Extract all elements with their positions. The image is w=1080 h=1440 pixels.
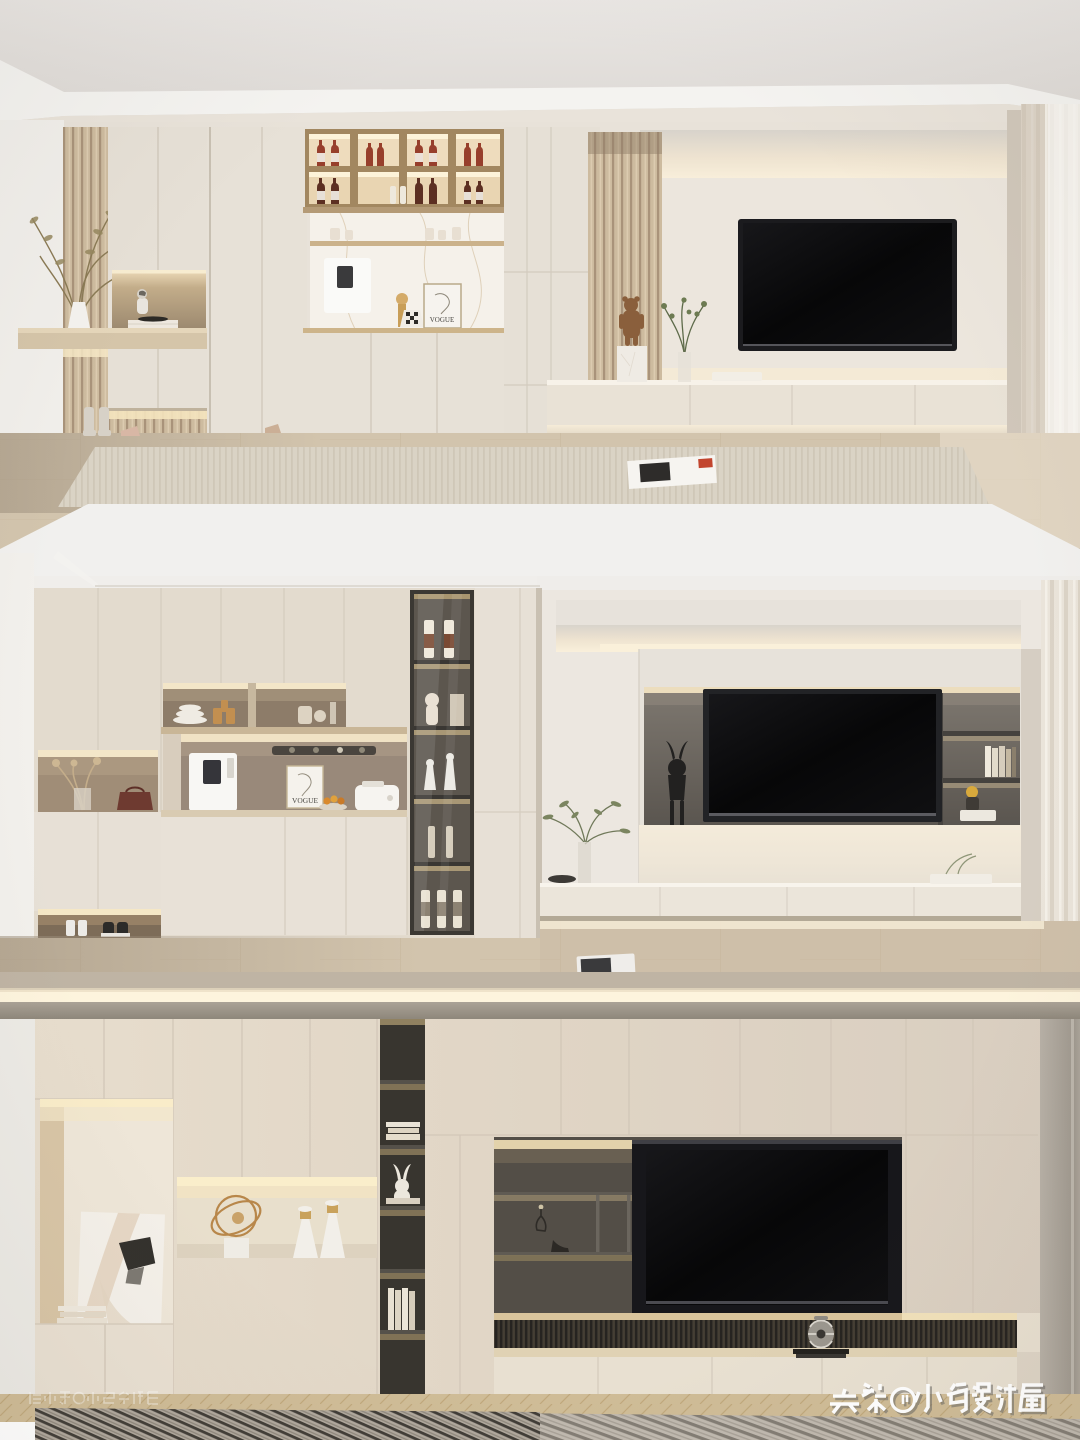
svg-text:VOGUE: VOGUE [292, 797, 318, 805]
svg-text:VOGUE: VOGUE [430, 316, 455, 324]
